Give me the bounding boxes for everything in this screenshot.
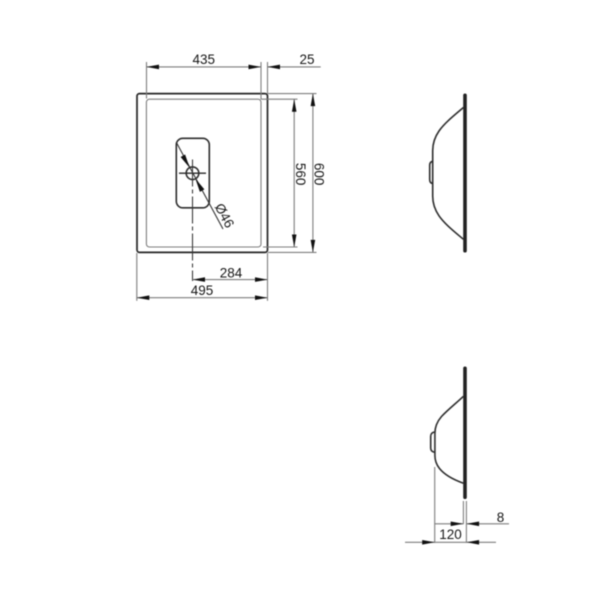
svg-text:435: 435 [193,52,216,67]
svg-text:284: 284 [220,265,243,280]
svg-text:495: 495 [191,283,214,298]
svg-text:25: 25 [299,52,314,67]
svg-text:120: 120 [439,527,462,542]
svg-text:560: 560 [293,163,308,186]
svg-text:600: 600 [312,163,327,186]
svg-text:8: 8 [497,510,505,525]
